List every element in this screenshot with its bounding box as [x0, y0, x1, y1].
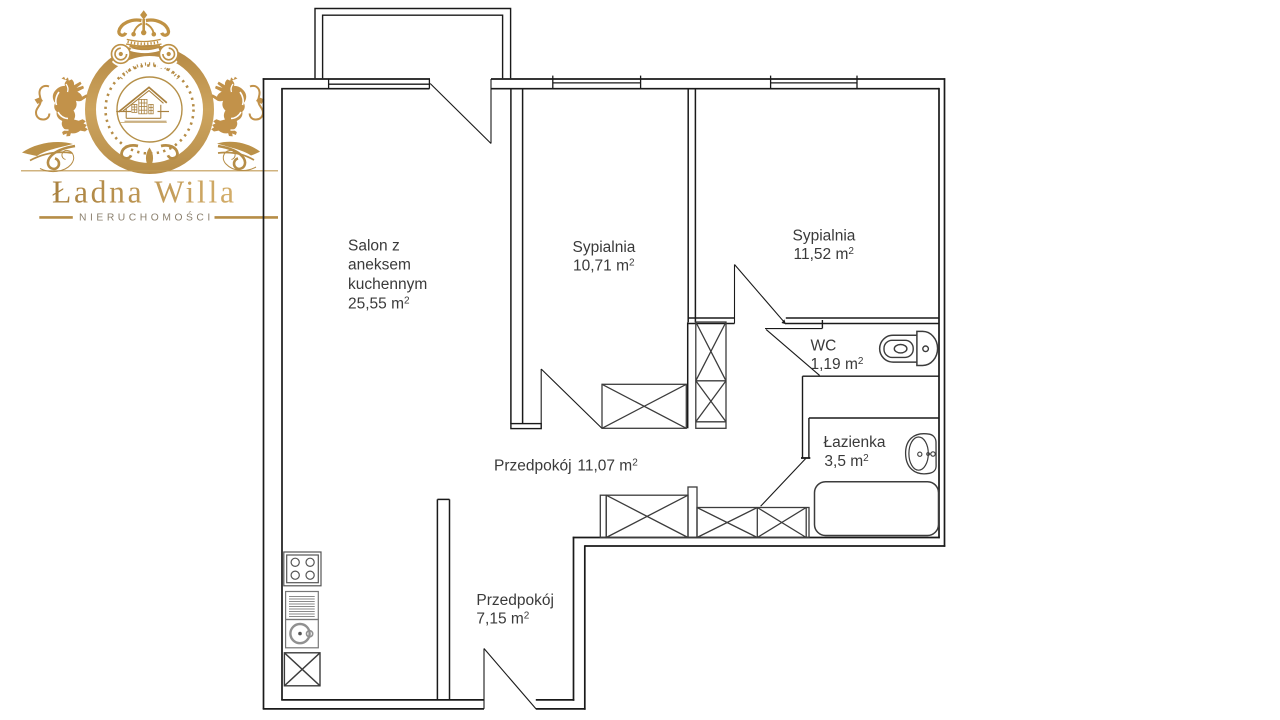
svg-text:kuchennym: kuchennym [348, 276, 427, 293]
svg-text:1,19 m2: 1,19 m2 [811, 356, 864, 373]
svg-text:10,71 m2: 10,71 m2 [573, 258, 635, 275]
svg-text:Salon z: Salon z [348, 237, 400, 254]
svg-text:NIERUCHOMOŚCI: NIERUCHOMOŚCI [79, 211, 214, 224]
svg-text:Przedpokój: Przedpokój [476, 592, 554, 609]
svg-text:Przedpokój 11,07 m2: Przedpokój 11,07 m2 [494, 458, 638, 475]
svg-text:Sypialnia: Sypialnia [573, 239, 636, 256]
svg-text:7,15 m2: 7,15 m2 [476, 610, 529, 627]
svg-text:3,5 m2: 3,5 m2 [824, 453, 869, 470]
svg-text:11,52 m2: 11,52 m2 [794, 246, 855, 263]
svg-text:Ładna Willa: Ładna Willa [52, 175, 234, 210]
svg-text:aneksem: aneksem [348, 257, 411, 274]
svg-text:Sypialnia: Sypialnia [793, 228, 856, 245]
svg-text:Łazienka: Łazienka [824, 434, 886, 451]
svg-text:WC: WC [811, 338, 837, 355]
svg-text:25,55 m2: 25,55 m2 [348, 295, 410, 312]
